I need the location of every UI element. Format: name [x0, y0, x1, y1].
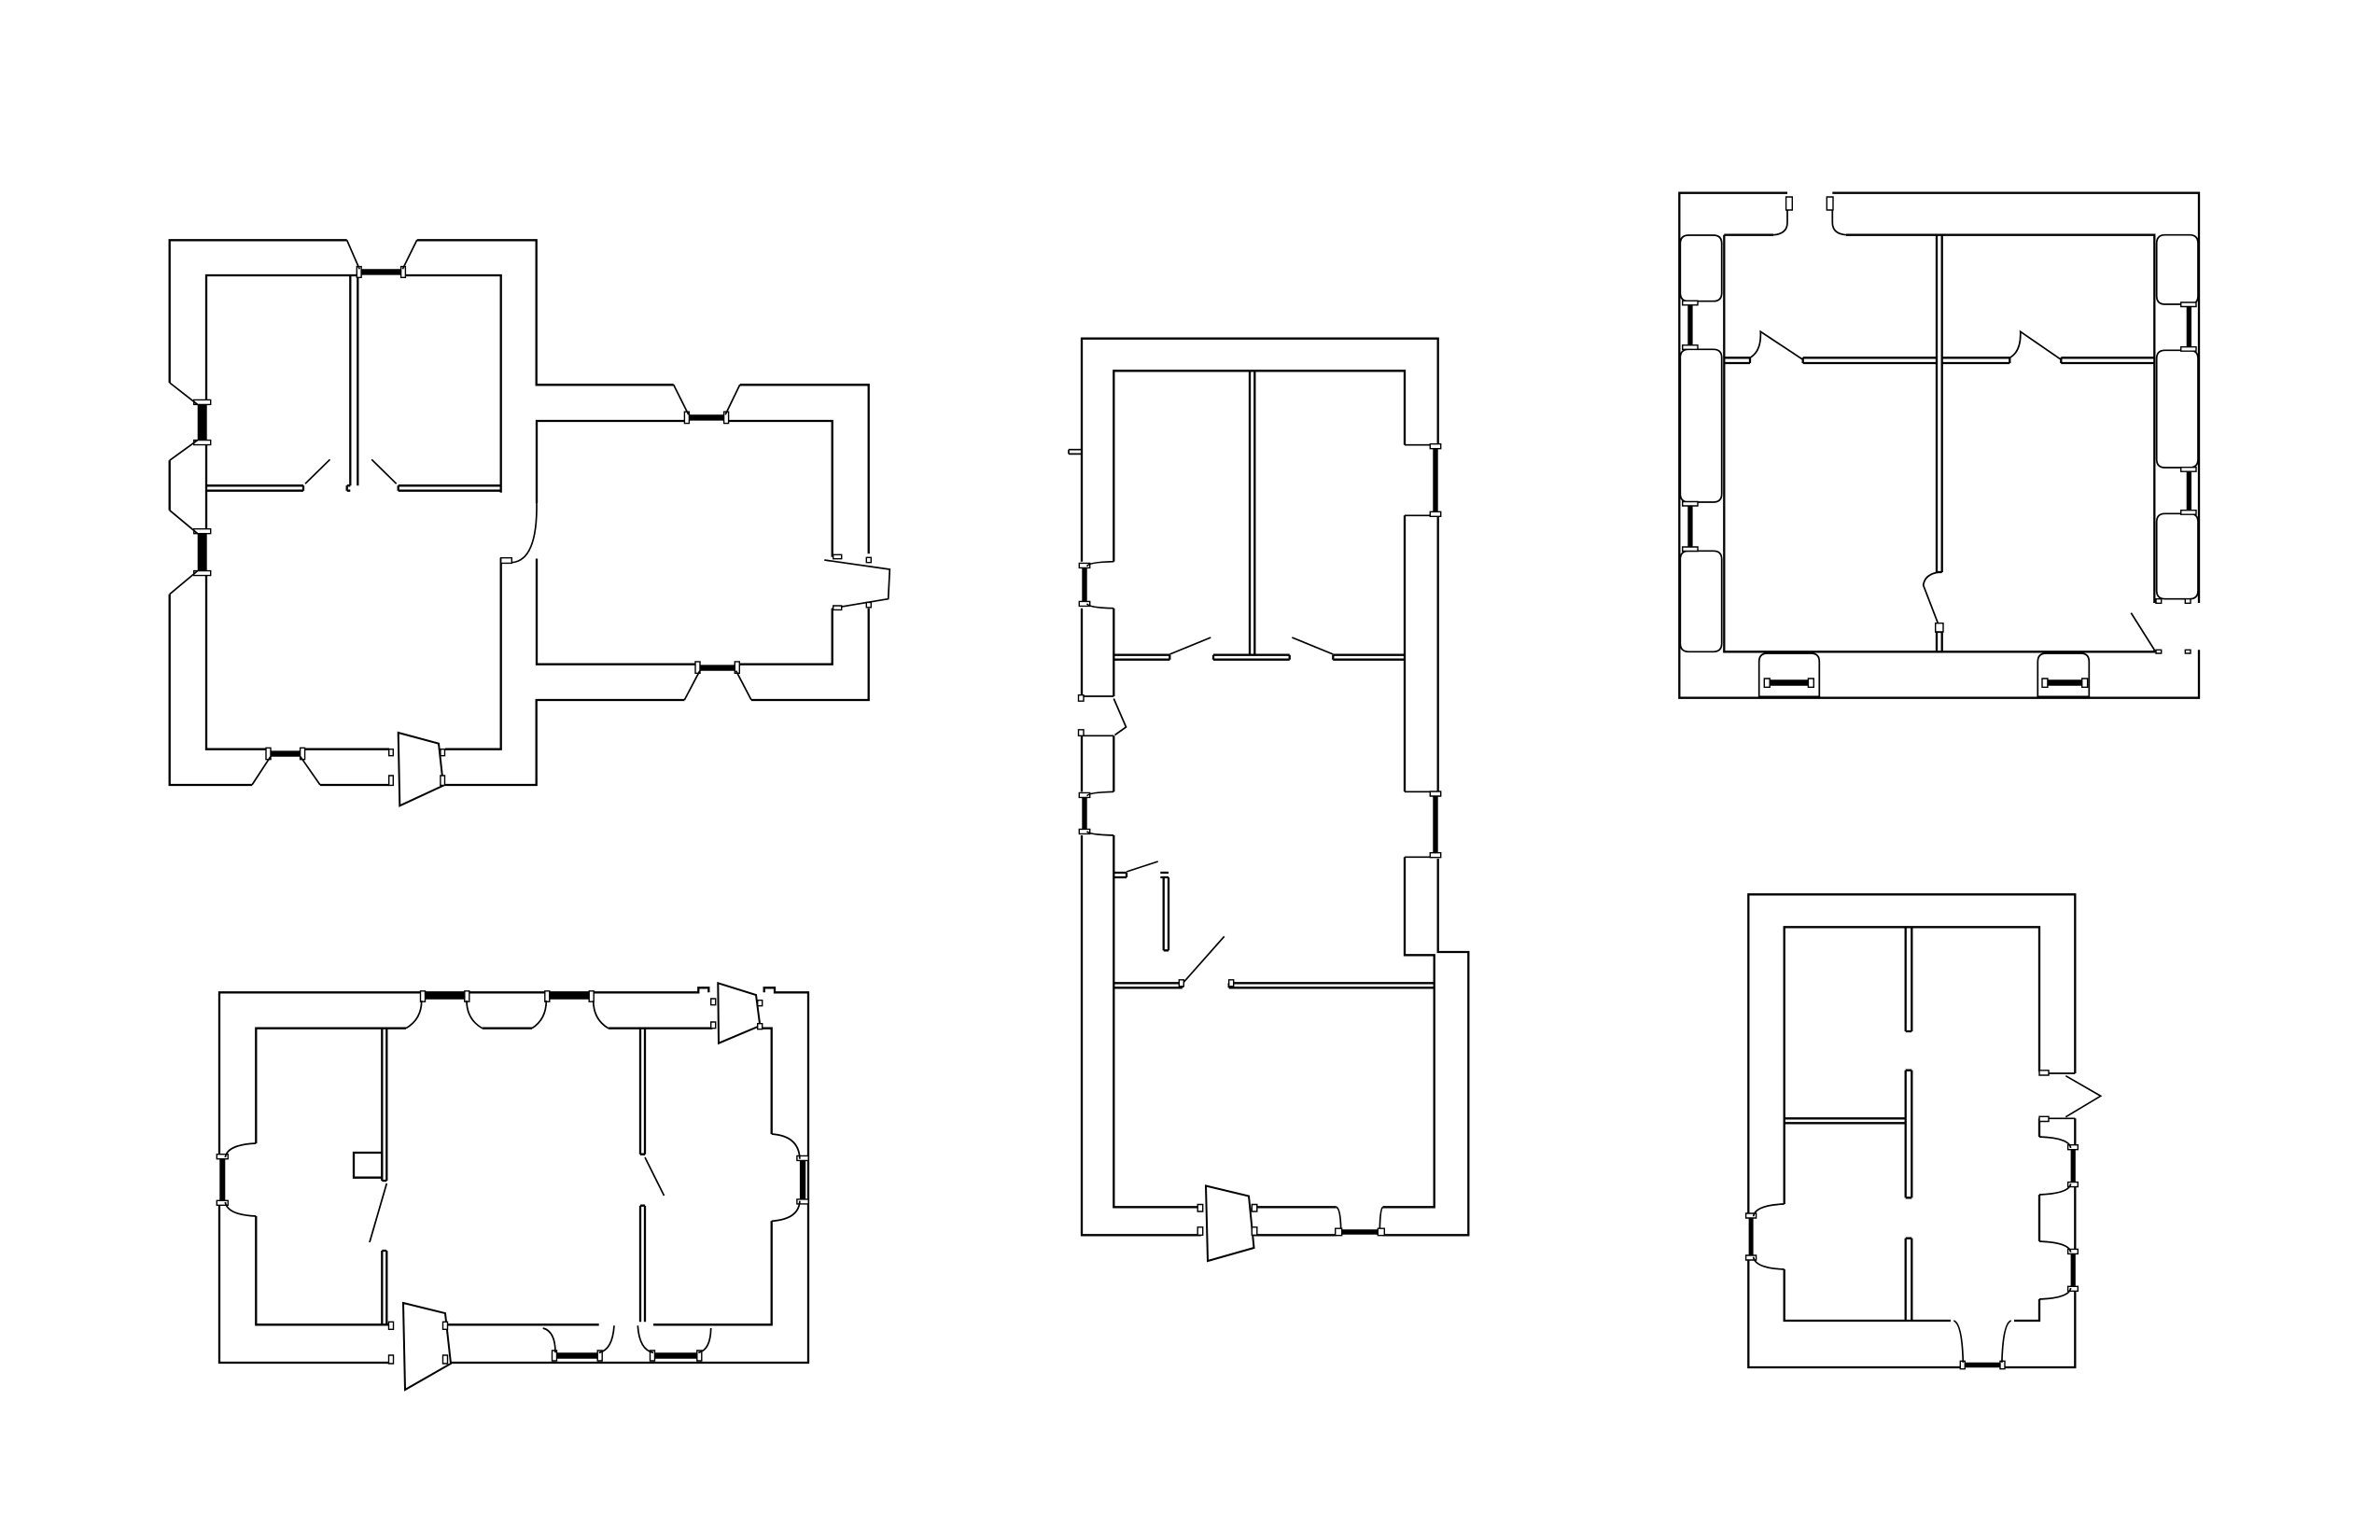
- window-reveal-arc: [406, 1001, 483, 1029]
- wall-niche-panel: [2157, 513, 2198, 598]
- partition-vertical: [1937, 235, 1942, 652]
- opening-mask: [1773, 232, 1846, 238]
- door-jamb-tick: [833, 554, 872, 609]
- partition-spine: [1906, 927, 1912, 1321]
- flue-reveal: [1773, 210, 1846, 235]
- window-reveal: [684, 671, 751, 700]
- window-niche-lines: [1405, 791, 1433, 857]
- window-reveal-arc: [543, 1325, 614, 1352]
- window-bar: [269, 750, 301, 756]
- inner-wall: [1724, 235, 2154, 652]
- window-reveal: [170, 511, 198, 595]
- window-bar: [361, 269, 401, 274]
- opening-mask: [167, 383, 173, 460]
- window-reveal-arc: [1953, 1321, 2010, 1363]
- window-bar: [1341, 1229, 1380, 1234]
- window-reveal-arc: [2039, 1137, 2071, 1195]
- opening-mask: [674, 382, 740, 387]
- partition-vertical: [350, 275, 357, 485]
- window-bar: [198, 403, 207, 442]
- window-bar: [1082, 567, 1086, 604]
- opening-mask: [1782, 1204, 1787, 1269]
- window-bar: [2187, 471, 2191, 511]
- window-reveal: [674, 385, 740, 414]
- window-bar: [425, 993, 465, 999]
- opening-mask: [253, 1143, 259, 1216]
- window-bar: [688, 414, 727, 420]
- opening-mask: [769, 1134, 775, 1221]
- opening-mask: [347, 237, 417, 243]
- window-niche-lines: [1405, 445, 1433, 516]
- entry-door-panel: [1206, 1186, 1254, 1262]
- door-jambs: [1082, 696, 1113, 735]
- window-bar: [1433, 796, 1437, 854]
- window-reveal-arc: [637, 1325, 710, 1352]
- partition-vertical: [1250, 371, 1254, 654]
- inner-wall-wing: [537, 421, 833, 665]
- window-reveal: [252, 757, 320, 785]
- window-reveal-arc: [532, 1001, 609, 1029]
- door-leaf: [1127, 861, 1158, 872]
- door-leaf: [1169, 637, 1333, 654]
- outer-wall: [1082, 339, 1468, 1236]
- door-leaf: [1183, 936, 1224, 982]
- wall-notch: [1069, 450, 1082, 455]
- door-jamb-tick: [1179, 980, 1233, 987]
- wall-niche-panel: [2157, 350, 2198, 468]
- plans-canvas: [0, 0, 2380, 1540]
- opening-mask: [1402, 445, 1407, 516]
- opening-mask: [498, 493, 504, 558]
- window-bar: [800, 1159, 805, 1201]
- window-reveal: [170, 383, 198, 460]
- entry-door-panel: [718, 983, 760, 1043]
- drawing-sheet: [0, 0, 2380, 1540]
- door-jamb-tick: [1936, 623, 1943, 632]
- entry-door-panel: [403, 1303, 451, 1390]
- opening-mask: [406, 1026, 483, 1031]
- door-jamb-tick: [2156, 599, 2191, 653]
- flue-jamb-tick: [1786, 197, 1833, 210]
- floor-plan-top-left: [167, 237, 890, 805]
- opening-mask: [2037, 1241, 2042, 1299]
- door-leaf-with-arc: [1924, 572, 1939, 625]
- wall-niche-panel: [1680, 349, 1721, 502]
- window-bar: [653, 1352, 698, 1359]
- wall-niche-panel: [2157, 235, 2198, 304]
- opening-mask: [1337, 1204, 1383, 1210]
- door-leaf-with-arc: [1750, 331, 1803, 359]
- wall-niche-panel: [1680, 551, 1721, 651]
- inner-wall-main: [206, 275, 501, 749]
- opening-mask: [684, 697, 751, 703]
- door-swing-arc: [511, 502, 537, 562]
- opening-mask: [532, 1026, 609, 1031]
- window-bar: [549, 993, 589, 999]
- door-leaf-with-arc: [2009, 331, 2061, 359]
- partition-horizontal: [1113, 655, 1405, 660]
- window-niche: [1759, 653, 1820, 696]
- window-bar: [1433, 448, 1437, 513]
- window-bar: [1082, 796, 1086, 832]
- floor-plan-middle-tall: [1069, 339, 1468, 1261]
- partition-right: [640, 1029, 645, 1325]
- window-niche: [2037, 653, 2089, 696]
- door-jamb-tick: [501, 558, 512, 564]
- opening-mask: [1402, 791, 1407, 857]
- chimney-block: [354, 1153, 382, 1178]
- floor-plan-bottom-left: [217, 983, 808, 1390]
- door-leaf: [2131, 613, 2154, 651]
- window-bar: [1770, 679, 1809, 686]
- window-bar: [555, 1352, 599, 1359]
- closet-walls: [1113, 873, 1169, 950]
- window-bar: [2047, 679, 2082, 686]
- entry-door-splay: [2039, 1073, 2101, 1118]
- window-bar: [198, 532, 207, 572]
- room-top-wall: [1113, 983, 1434, 987]
- outer-wall: [1679, 193, 2199, 698]
- partition-horizontal: [1785, 1118, 1906, 1123]
- opening-mask: [2037, 1137, 2042, 1195]
- partition-horizontal: [1724, 357, 2154, 363]
- inner-wall: [256, 1029, 771, 1325]
- floor-plan-top-right: [1679, 193, 2199, 698]
- window-reveal: [347, 240, 417, 269]
- opening-mask: [2037, 1071, 2042, 1118]
- entry-door-panel: [399, 733, 443, 805]
- window-bar: [1687, 506, 1692, 547]
- window-bar: [219, 1157, 225, 1202]
- door-leaf: [645, 1157, 665, 1196]
- window-reveal-arc: [2039, 1241, 2071, 1299]
- window-bar: [2071, 1253, 2076, 1288]
- window-reveal-arc: [1754, 1204, 1785, 1269]
- opening-mask: [167, 511, 173, 595]
- inner-wall: [1113, 371, 1434, 1207]
- opening-mask: [599, 1322, 653, 1327]
- window-reveal-arc: [1087, 562, 1114, 609]
- window-reveal-arc: [1337, 1207, 1383, 1229]
- outer-wall: [170, 240, 869, 785]
- wall-niche-panel: [1680, 235, 1721, 301]
- window-bar: [2187, 306, 2191, 346]
- outer-wall: [219, 987, 808, 1363]
- opening-mask: [1111, 791, 1116, 835]
- window-bar: [1749, 1216, 1754, 1256]
- window-reveal-arc: [225, 1143, 256, 1216]
- partition-horizontal: [206, 485, 501, 490]
- opening-mask: [830, 557, 835, 609]
- opening-mask: [1111, 562, 1116, 609]
- window-bar: [1687, 305, 1692, 345]
- window-bar: [2071, 1148, 2076, 1183]
- door-leaf: [370, 1183, 386, 1242]
- window-reveal-arc: [772, 1134, 800, 1221]
- window-bar: [1963, 1363, 2002, 1367]
- opening-mask: [1951, 1318, 2014, 1323]
- opening-mask: [252, 782, 320, 788]
- window-reveal-arc: [1087, 791, 1114, 835]
- window-bar: [698, 665, 737, 670]
- floor-plan-bottom-right: [1745, 894, 2100, 1370]
